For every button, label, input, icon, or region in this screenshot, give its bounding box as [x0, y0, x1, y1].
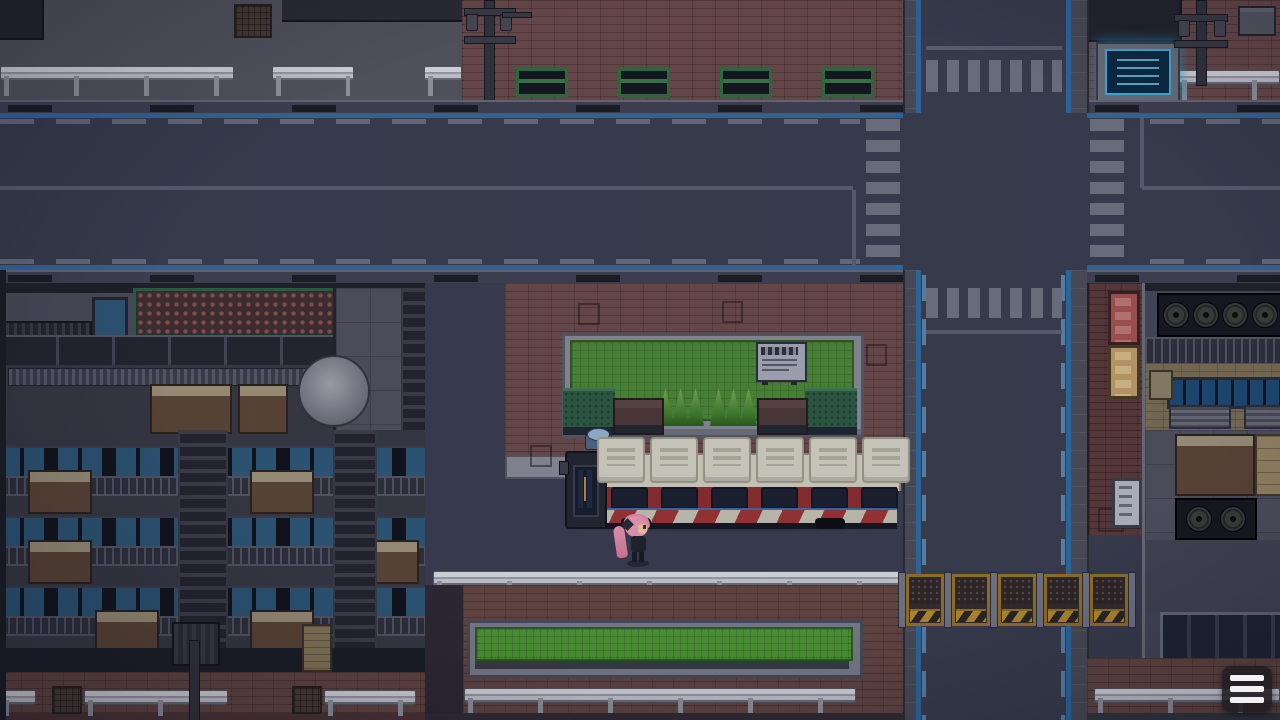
sidewalk-strip [1071, 0, 1089, 113]
lane-edge-line [1087, 113, 1280, 118]
lane-edge-line [916, 0, 921, 113]
player-body [631, 536, 646, 552]
lane-dashes-blue [1061, 275, 1065, 720]
barrier-segment [1036, 572, 1082, 628]
window-band [0, 335, 333, 365]
horizontal-road [0, 113, 1280, 270]
manhole-grate [292, 686, 322, 714]
wall-sign-white [1112, 478, 1142, 528]
vent-box [1169, 405, 1231, 429]
barrier-post [1036, 572, 1044, 628]
map-sign-screen [1105, 49, 1171, 95]
hamburger-menu-icon [1230, 686, 1264, 692]
barrier-panel [998, 574, 1036, 626]
bus-window [761, 487, 798, 509]
bus-mirror [559, 461, 569, 475]
barrier-panel [906, 574, 944, 626]
exhaust-fan-icon [1220, 506, 1246, 532]
lane-edge-line [916, 270, 921, 720]
stairwell [333, 430, 377, 672]
hedge-box [805, 388, 857, 435]
manhole-grate [234, 4, 272, 38]
barrier-segment [898, 572, 944, 628]
park-bench [613, 398, 664, 435]
crosswalk-east [1090, 119, 1124, 266]
exhaust-fan-icon [1163, 302, 1189, 328]
lane-dashes [1150, 259, 1280, 264]
barrier-post [944, 572, 952, 628]
barrier-panel [1044, 574, 1082, 626]
bottom-edge-dark [1087, 713, 1280, 720]
barrier-segment [1082, 572, 1128, 628]
bus-window [711, 487, 748, 509]
brick-pillar [302, 624, 332, 672]
bus-window-band [595, 487, 897, 509]
topiary-group [658, 388, 703, 428]
barrier-post [990, 572, 998, 628]
lane-edge-line [1066, 0, 1071, 113]
map-sign-text-glyphs [1117, 59, 1159, 85]
barrier-post [1082, 572, 1090, 628]
balcony-unit [238, 384, 288, 434]
illuminated-map-sign[interactable] [1096, 42, 1180, 102]
roof-hatch [809, 437, 857, 483]
barrier-panel [952, 574, 990, 626]
roof-hatch [650, 437, 698, 483]
notice-board[interactable] [756, 342, 803, 385]
topiary-bush [740, 388, 757, 426]
utility-pole [1170, 0, 1230, 84]
satellite-dish-icon [298, 355, 370, 427]
stop-line [852, 190, 856, 265]
apartment-block-right [1142, 283, 1280, 673]
bus-wheel [815, 518, 845, 529]
utility-pole [168, 618, 220, 720]
green-bench [822, 68, 874, 97]
window-row-dark [1160, 612, 1280, 664]
topiary-bush [710, 388, 727, 426]
manhole-grate [52, 686, 82, 714]
lane-dashes [0, 119, 860, 124]
apartment-block-left [0, 283, 425, 672]
exhaust-fan-icon [1193, 302, 1219, 328]
bottom-edge-dark [425, 713, 903, 720]
utility-box [1149, 370, 1173, 400]
stop-line [926, 330, 1062, 334]
planter [467, 620, 863, 678]
exhaust-fan-icon [1252, 302, 1278, 328]
crosswalk-south [926, 288, 1062, 318]
lane-edge-line [0, 113, 903, 118]
paving-tile-mark [578, 303, 600, 325]
wall-sign-red [1108, 291, 1140, 345]
stop-line [926, 46, 1062, 50]
balcony-unit [1175, 434, 1255, 496]
center-line [1142, 186, 1280, 190]
roof-vent-unit [1238, 6, 1276, 36]
paving-tile-mark [866, 344, 887, 366]
guardrail [0, 66, 234, 96]
guardrail [324, 690, 416, 716]
balcony-unit [28, 470, 92, 514]
exhaust-fan-row [1157, 293, 1280, 337]
lane-dashes [1150, 119, 1280, 124]
roof-hatch [862, 437, 910, 483]
player-character[interactable] [613, 512, 653, 568]
guardrail [272, 66, 354, 96]
lane-edge-line [1066, 270, 1071, 720]
stairwell [401, 288, 427, 430]
tan-cabinet [1255, 434, 1280, 496]
green-bench [720, 68, 772, 97]
stop-line [1140, 118, 1144, 188]
barrier-panel [1090, 574, 1128, 626]
tan-brick-band [1145, 363, 1280, 430]
balcony-unit [250, 470, 314, 514]
bus-window [811, 487, 848, 509]
bus-window [661, 487, 698, 509]
barrier-segment [944, 572, 990, 628]
bench-row [516, 68, 856, 93]
barrier-post [1128, 572, 1136, 628]
wall-sign-yellow [1108, 345, 1140, 399]
planter-ledge-shadow [475, 661, 849, 669]
topiary-row [658, 388, 758, 428]
lane-dashes [0, 259, 860, 264]
lower-wall [1145, 540, 1280, 612]
guardrail [464, 688, 856, 714]
screen-edge-shade [0, 270, 6, 720]
exhaust-fan-pair [1175, 498, 1257, 540]
crosswalk-north [926, 60, 1062, 92]
guardrail [424, 66, 462, 96]
player-shadow [627, 560, 649, 567]
exhaust-fan-icon [1222, 302, 1248, 328]
balcony-unit [28, 540, 92, 584]
menu-button[interactable] [1222, 666, 1272, 712]
barrier-segment [990, 572, 1036, 628]
barrier-post [898, 572, 906, 628]
rooftop-block [1087, 0, 1182, 42]
hamburger-menu-icon [1230, 675, 1264, 681]
player-leg [632, 552, 637, 562]
bus-window [611, 487, 648, 509]
crosswalk-west [866, 119, 900, 266]
bus-door[interactable] [573, 465, 599, 517]
roof-hatch [597, 437, 645, 483]
lane-dashes-blue [922, 275, 926, 720]
construction-barrier [898, 572, 1092, 628]
rooftop-block [282, 0, 462, 22]
bus-window [861, 487, 898, 509]
topiary-bush [725, 388, 742, 426]
topiary-bush [687, 388, 704, 426]
planter-hedge [475, 627, 853, 661]
park-bench [757, 398, 808, 435]
vent-box [1244, 405, 1280, 429]
tiled-wall [1145, 430, 1280, 540]
exhaust-fan-icon [1186, 506, 1212, 532]
roof-hatch [756, 437, 804, 483]
hamburger-menu-icon [1230, 697, 1264, 703]
balcony-lattice-rail [133, 288, 339, 338]
game-viewport [0, 0, 1280, 720]
topiary-group [711, 388, 756, 428]
alley-shadow [425, 585, 463, 720]
utility-pole [462, 0, 522, 100]
green-bench [516, 68, 568, 97]
player-eye [643, 525, 646, 529]
player-leg [639, 552, 644, 562]
rooftop-block [0, 0, 44, 40]
center-line [0, 186, 853, 190]
topiary-bush [672, 388, 689, 426]
bus-roof-hatches [597, 437, 897, 483]
paving-tile-mark [530, 445, 552, 467]
balcony-unit [150, 384, 232, 434]
roof-hatch [703, 437, 751, 483]
paving-tile-mark [722, 301, 743, 323]
green-bench [618, 68, 670, 97]
